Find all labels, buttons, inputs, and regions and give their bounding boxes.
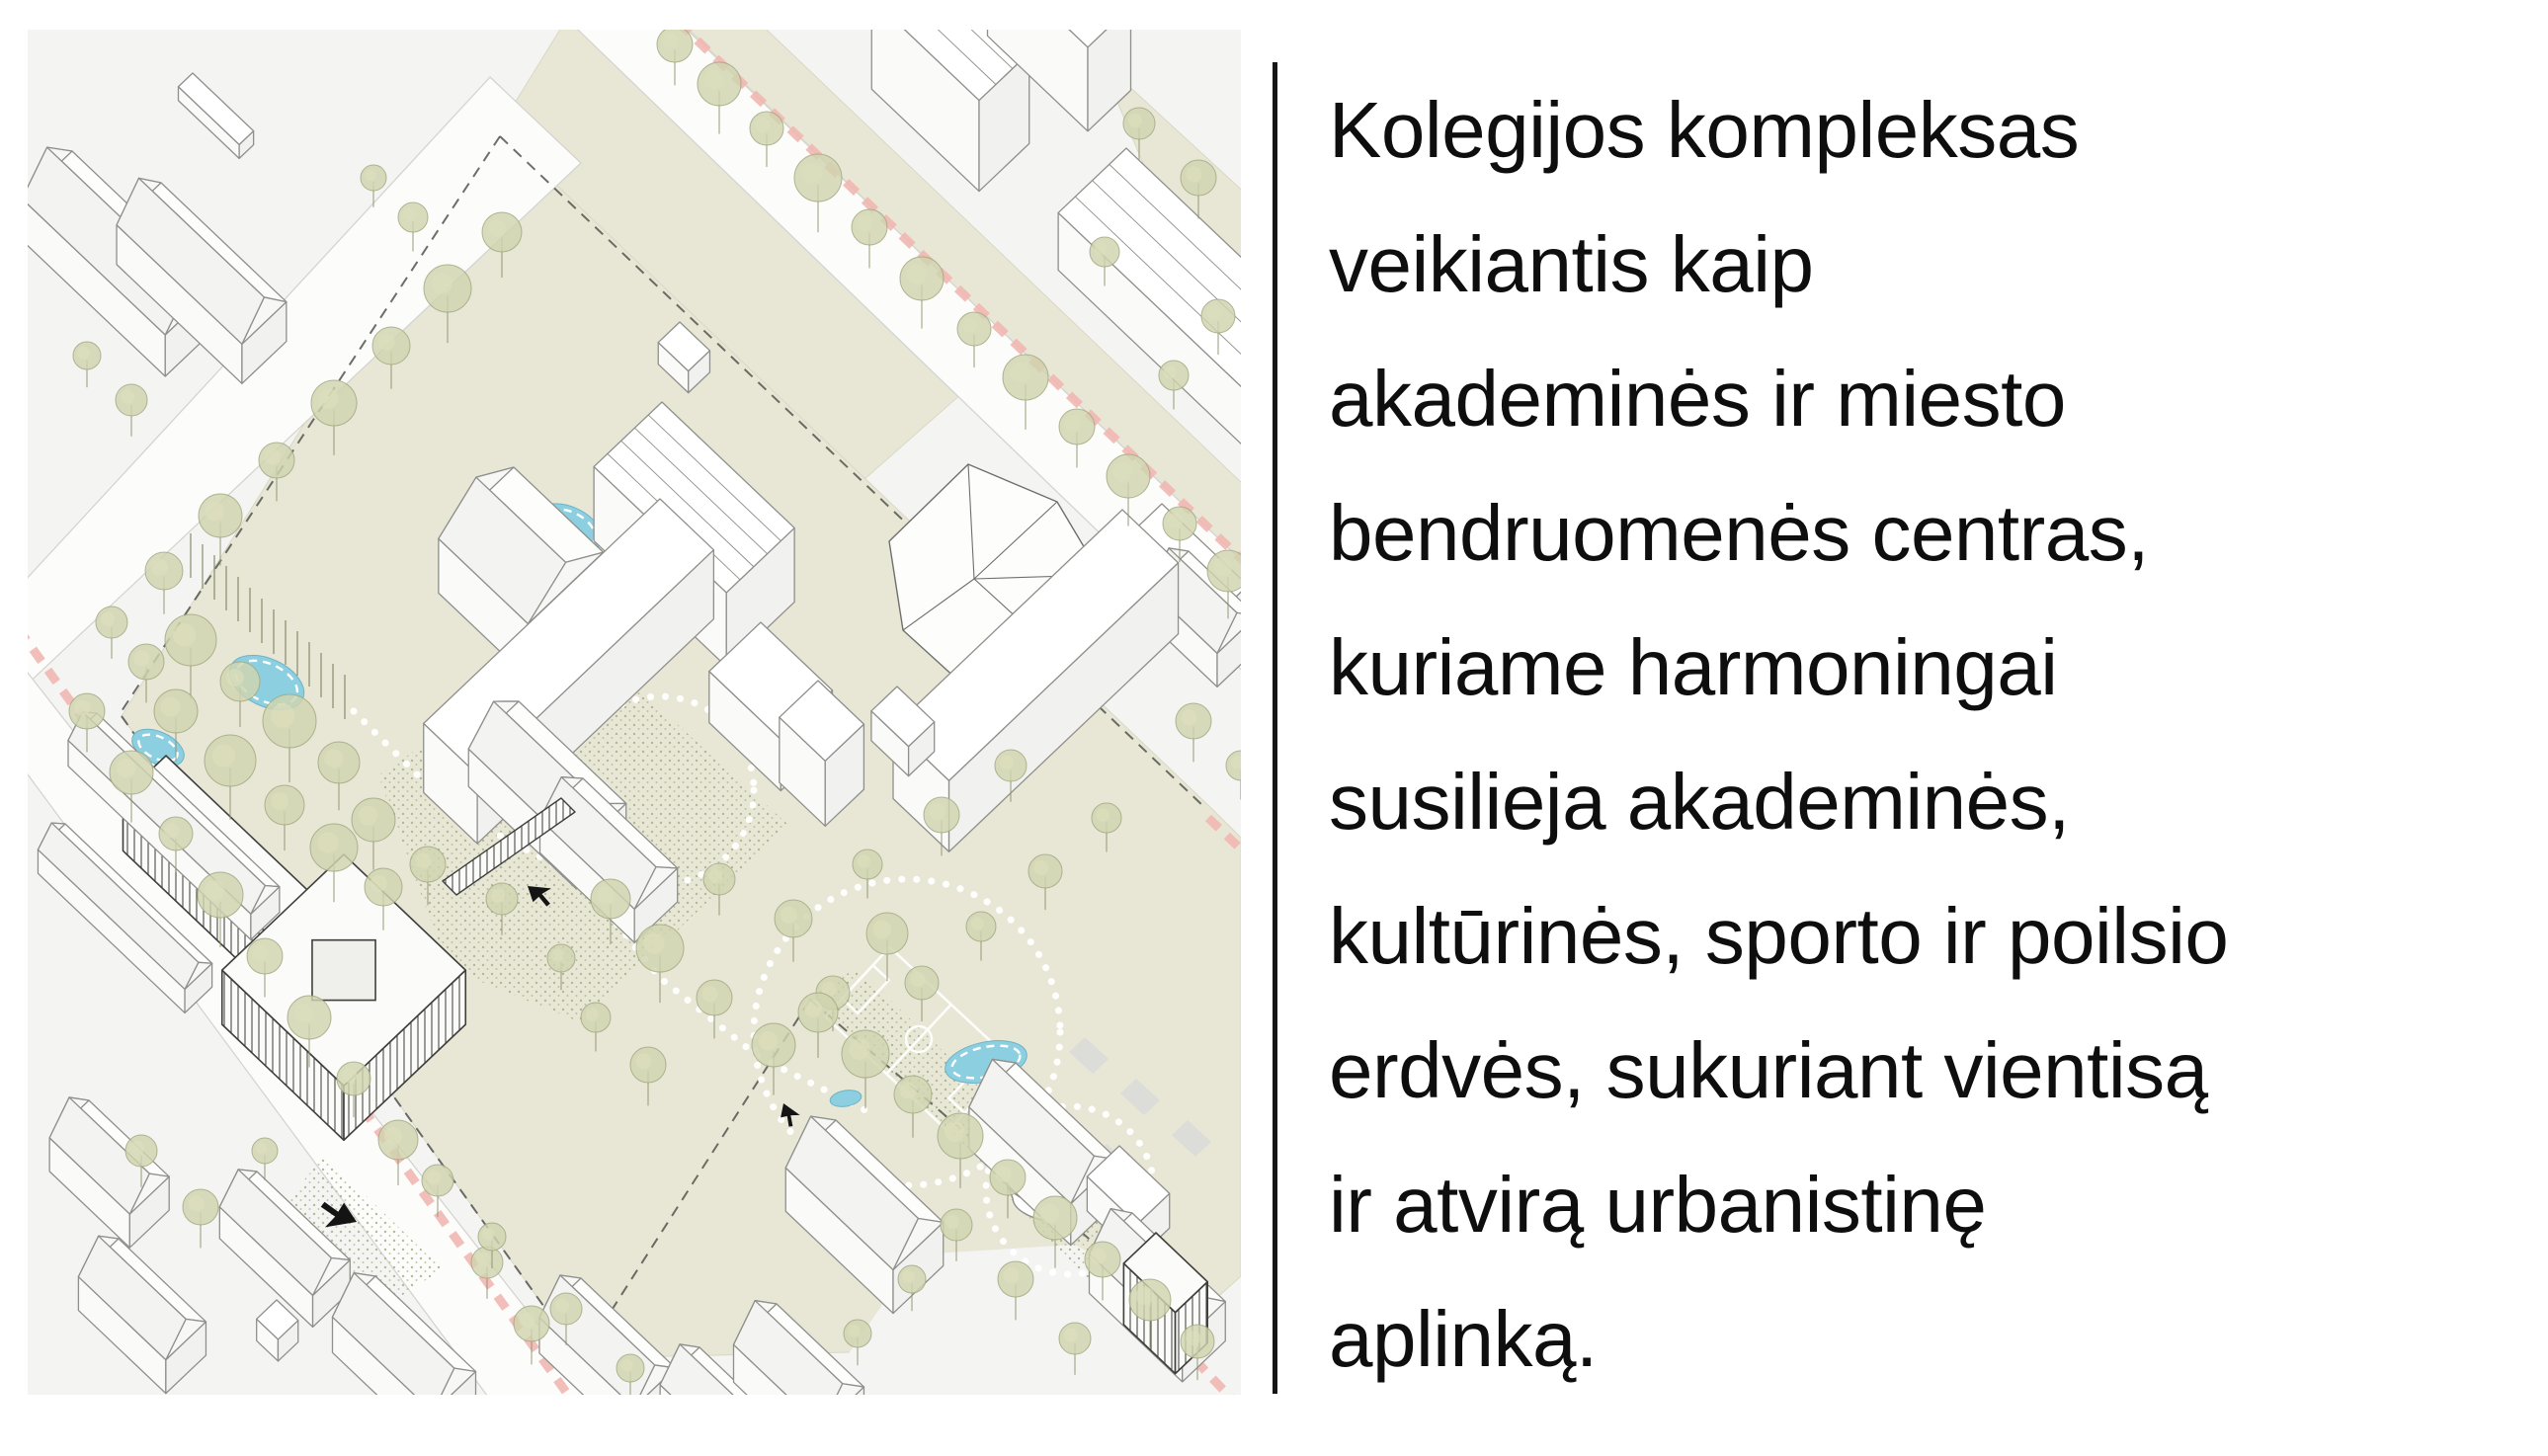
tree-canopy-highlight: [324, 749, 343, 768]
tree-canopy-highlight: [205, 880, 225, 901]
tree-canopy-highlight: [872, 920, 891, 938]
tree-canopy-highlight: [586, 1008, 600, 1021]
tree-canopy-highlight: [902, 1270, 915, 1283]
tree-canopy-highlight: [1010, 363, 1030, 383]
tree-canopy-highlight: [945, 1121, 965, 1142]
tree-canopy-highlight: [849, 1038, 870, 1060]
tree-canopy-highlight: [781, 907, 797, 924]
tree-canopy-highlight: [101, 612, 115, 626]
tree-canopy-highlight: [318, 388, 339, 409]
tree-canopy-highlight: [342, 1068, 357, 1083]
tree-canopy-highlight: [858, 854, 871, 868]
vertical-divider: [1273, 62, 1277, 1394]
tree-canopy-highlight: [1186, 1331, 1200, 1345]
tree-canopy-highlight: [1003, 1267, 1019, 1283]
description-line: ir atvirą urbanistinę: [1329, 1138, 2514, 1272]
tree-canopy-highlight: [635, 1053, 651, 1069]
tree-canopy-highlight: [359, 806, 378, 826]
tree-canopy-highlight: [151, 559, 168, 576]
tree-canopy-highlight: [759, 1031, 779, 1051]
tree-canopy-highlight: [403, 207, 417, 221]
tree-canopy-highlight: [294, 1004, 314, 1023]
tree-canopy-highlight: [488, 219, 506, 237]
tree-canopy-highlight: [384, 1127, 402, 1145]
description-line: kuriame harmoningai: [1329, 601, 2514, 735]
tree-canopy-highlight: [995, 1166, 1011, 1181]
tree-canopy-highlight: [252, 944, 268, 960]
tree-canopy-highlight: [1113, 462, 1133, 482]
tree-canopy-highlight: [256, 1143, 268, 1155]
tree-canopy-highlight: [1033, 860, 1048, 875]
description-line: veikiantis kaip: [1329, 198, 2514, 332]
tree-canopy-highlight: [431, 273, 452, 294]
tree-canopy-highlight: [519, 1312, 534, 1328]
tree-canopy-highlight: [1128, 114, 1142, 127]
description-line: erdvės, sukuriant vientisą: [1329, 1004, 2514, 1138]
tree-canopy-highlight: [1206, 305, 1221, 320]
tree-canopy-highlight: [643, 932, 665, 954]
tree-canopy-highlight: [1090, 1248, 1106, 1263]
tree-canopy-highlight: [205, 502, 225, 522]
tree-canopy-highlight: [804, 1000, 822, 1017]
tree-canopy-highlight: [1064, 415, 1080, 431]
tree-canopy-highlight: [801, 162, 823, 184]
tree-canopy-highlight: [1064, 1329, 1078, 1342]
tree-canopy-highlight: [597, 886, 615, 904]
tree-canopy-highlight: [1095, 242, 1109, 256]
tree-canopy-highlight: [900, 1083, 917, 1099]
tree-canopy-highlight: [378, 334, 395, 351]
tree-canopy-highlight: [620, 1359, 633, 1372]
tree-canopy-highlight: [755, 118, 770, 132]
slide: Kolegijos kompleksas veikiantis kaip aka…: [0, 0, 2548, 1456]
description-line: aplinką.: [1329, 1272, 2514, 1407]
tree-canopy-highlight: [929, 803, 945, 819]
tree-canopy-highlight: [121, 390, 134, 404]
tree-canopy-highlight: [264, 448, 280, 464]
tree-canopy-highlight: [365, 170, 376, 182]
tree-canopy-highlight: [1000, 756, 1014, 769]
tree-canopy-highlight: [701, 986, 717, 1002]
tree-canopy-highlight: [74, 699, 90, 715]
tree-canopy-highlight: [271, 703, 294, 727]
tree-canopy-highlight: [1164, 365, 1178, 379]
tree-canopy-highlight: [161, 697, 181, 717]
tree-canopy-highlight: [130, 1141, 144, 1155]
description-text: Kolegijos kompleksas veikiantis kaip aka…: [1329, 63, 2514, 1407]
tree-canopy-highlight: [427, 1171, 441, 1184]
tree-canopy-highlight: [1135, 1286, 1154, 1305]
tree-canopy-highlight: [945, 1215, 959, 1229]
tree-canopy-highlight: [910, 972, 925, 987]
tree-canopy-highlight: [476, 1253, 490, 1266]
tree-canopy-highlight: [555, 1299, 569, 1313]
description-line: bendruomenės centras,: [1329, 466, 2514, 601]
tree-canopy-highlight: [1186, 166, 1201, 182]
tree-canopy-highlight: [188, 1195, 204, 1211]
tree-canopy-highlight: [1213, 557, 1232, 576]
tree-canopy-highlight: [133, 650, 149, 666]
tree-canopy-highlight: [1168, 513, 1183, 527]
tree-canopy-highlight: [212, 744, 235, 767]
tree-canopy-highlight: [551, 949, 564, 962]
site-plan-svg: [28, 30, 1241, 1395]
tree-canopy-highlight: [662, 33, 678, 48]
tree-canopy-highlight: [482, 1228, 495, 1241]
tree-canopy-highlight: [226, 669, 244, 687]
tree-canopy-highlight: [415, 852, 431, 868]
tree-canopy-highlight: [271, 792, 288, 810]
tree-canopy-highlight: [962, 318, 977, 333]
description-line: kultūrinės, sporto ir poilsio: [1329, 869, 2514, 1004]
tree-canopy-highlight: [907, 265, 927, 284]
description-line: susilieja akademinės,: [1329, 735, 2514, 869]
tree-canopy-highlight: [848, 1325, 861, 1337]
tree-canopy-highlight: [971, 917, 985, 930]
tree-canopy-highlight: [317, 832, 339, 853]
tree-canopy-highlight: [77, 347, 90, 360]
tree-canopy-highlight: [173, 623, 196, 646]
tree-canopy-highlight: [704, 70, 724, 90]
description-line: Kolegijos kompleksas: [1329, 63, 2514, 198]
tree-canopy-highlight: [857, 215, 872, 231]
tree-canopy-highlight: [1097, 808, 1110, 822]
tree-canopy-highlight: [1181, 709, 1196, 725]
site-plan-illustration: [28, 30, 1241, 1395]
tree-canopy-highlight: [1040, 1204, 1060, 1224]
tree-canopy-highlight: [491, 889, 505, 903]
tree-canopy-highlight: [370, 875, 387, 892]
tree-canopy-highlight: [164, 823, 179, 838]
courtyard: [312, 940, 375, 1001]
description-line: akademinės ir miesto: [1329, 332, 2514, 466]
tree-canopy-highlight: [708, 869, 722, 883]
tree-canopy-highlight: [117, 759, 136, 778]
